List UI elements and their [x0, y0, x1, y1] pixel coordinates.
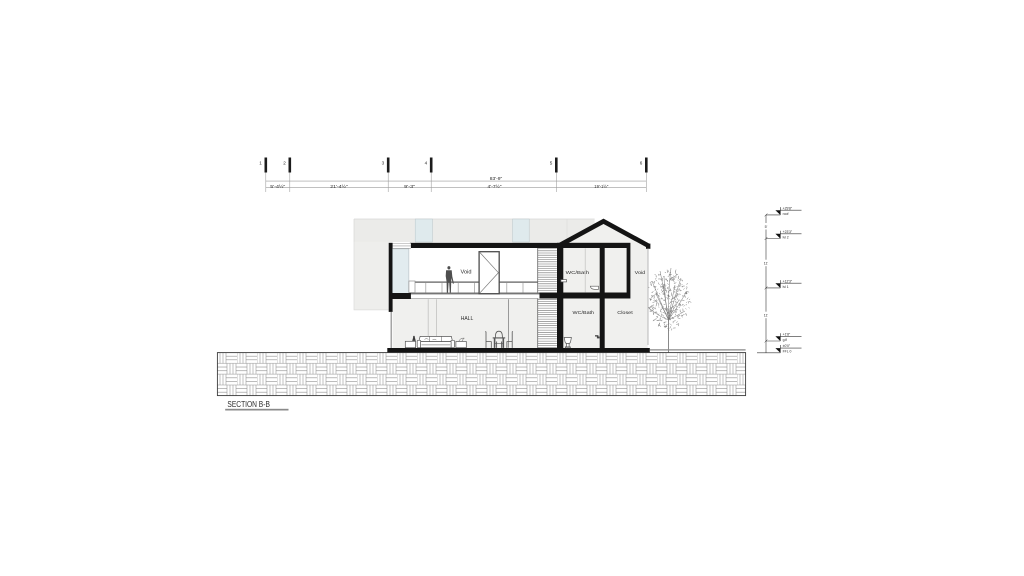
svg-text:+29'8": +29'8": [783, 206, 793, 210]
svg-text:11': 11': [764, 314, 769, 318]
svg-text:HALL: HALL: [461, 316, 474, 322]
svg-text:Void: Void: [635, 270, 646, 275]
svg-text:5': 5': [765, 225, 768, 229]
svg-text:5: 5: [550, 161, 553, 166]
svg-text:4: 4: [425, 161, 428, 166]
svg-text:WC/Bath: WC/Bath: [573, 310, 595, 315]
svg-text:roof: roof: [783, 212, 789, 216]
svg-text:g.fl: g.fl: [783, 338, 788, 342]
svg-text:5'-4½": 5'-4½": [270, 184, 286, 189]
svg-text:19'-1½": 19'-1½": [594, 184, 608, 189]
svg-text:+1'8": +1'8": [783, 332, 791, 336]
svg-text:2: 2: [283, 161, 286, 166]
svg-text:lvl 2: lvl 2: [783, 235, 789, 239]
svg-text:Void: Void: [461, 270, 472, 276]
svg-text:+12'3": +12'3": [783, 279, 793, 283]
svg-text:1: 1: [259, 161, 262, 166]
svg-text:21'-4½": 21'-4½": [330, 184, 348, 189]
svg-text:6: 6: [640, 161, 643, 166]
svg-text:3: 3: [382, 161, 385, 166]
svg-text:+23'3": +23'3": [783, 230, 793, 234]
svg-text:11': 11': [764, 262, 769, 266]
svg-text:4'-7½": 4'-7½": [488, 184, 503, 189]
svg-text:Closet: Closet: [617, 310, 633, 315]
svg-text:SECTION B-B: SECTION B-B: [227, 400, 270, 409]
svg-text:FFL 0: FFL 0: [783, 350, 792, 354]
svg-text:WC/Bath: WC/Bath: [566, 270, 590, 275]
svg-text:9'-3": 9'-3": [404, 184, 416, 189]
svg-text:±0'0": ±0'0": [783, 344, 791, 348]
svg-text:83'-9": 83'-9": [490, 176, 503, 181]
svg-text:lvl 1: lvl 1: [783, 285, 789, 289]
